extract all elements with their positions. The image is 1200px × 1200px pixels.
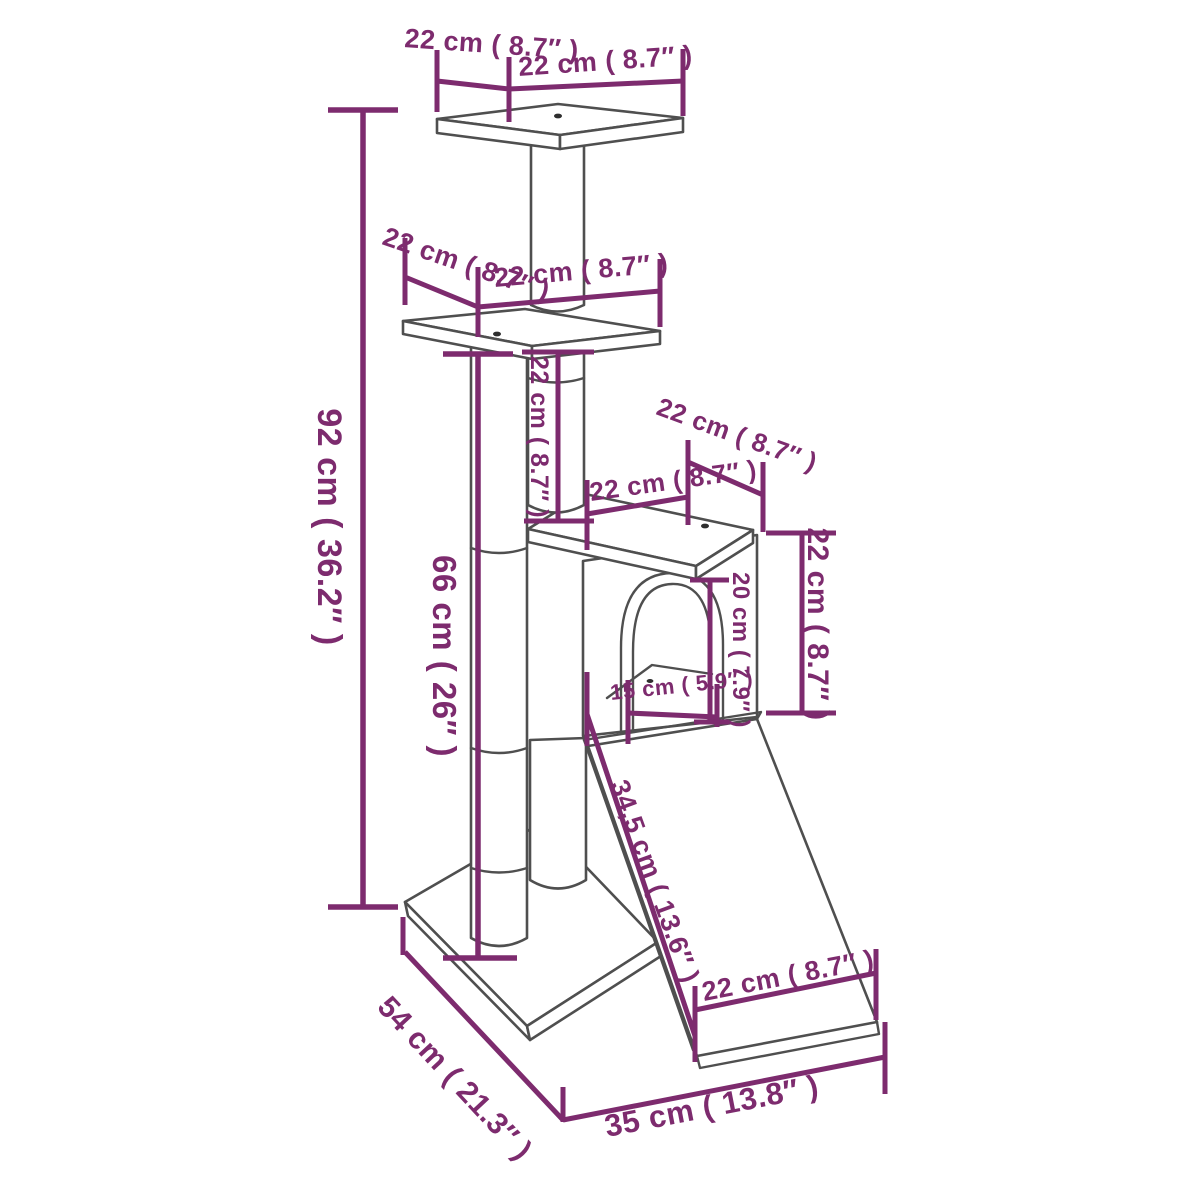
dim-house-height: 22 cm ( 8.7″ ) [766, 527, 836, 720]
dim-label-door-height: 20 cm ( 7.9″ ) [727, 572, 754, 728]
dim-label-upper-post-height: 22 cm ( 8.7″ ) [525, 356, 553, 518]
ramp [584, 712, 879, 1068]
top-platform [437, 104, 683, 149]
post-under-house [530, 738, 586, 889]
dim-total-height: 92 cm ( 36.2″ ) [310, 110, 398, 907]
dim-label-total-height: 92 cm ( 36.2″ ) [310, 408, 348, 645]
dim-top-platform-width: 22 cm ( 8.7″ ) [509, 40, 694, 116]
dimension-diagram-page: 92 cm ( 36.2″ ) 66 cm ( 26″ ) 22 cm ( 8.… [0, 0, 1200, 1200]
cat-tree-dimension-diagram: 92 cm ( 36.2″ ) 66 cm ( 26″ ) 22 cm ( 8.… [0, 0, 1200, 1200]
dim-label-house-height: 22 cm ( 8.7″ ) [801, 527, 834, 720]
dim-label-main-post-height: 66 cm ( 26″ ) [426, 555, 463, 757]
dim-label-base-width: 35 cm ( 13.8″ ) [602, 1068, 822, 1144]
